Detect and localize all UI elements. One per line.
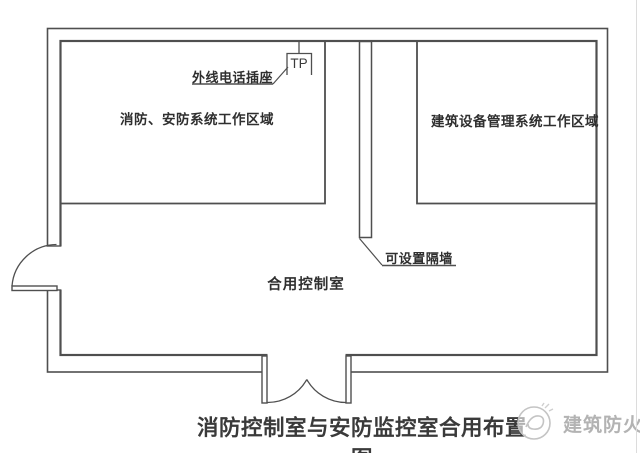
floor-plan-figure: 消防、安防系统工作区域 建筑设备管理系统工作区域 合用控制室 外线电话插座 TP…: [0, 0, 640, 453]
outer-wall-line: [48, 29, 608, 373]
partition-wall-label: 可设置隔墙: [382, 248, 456, 267]
control-room-label: 合用控制室: [256, 273, 356, 294]
floor-plan-linework: [0, 0, 640, 453]
bottom-door-left-arc: [267, 380, 307, 403]
bottom-door-left-leaf: [262, 356, 267, 403]
partition-wall: [360, 42, 372, 238]
figure-title: 消防控制室与安防监控室合用布置图: [196, 411, 528, 453]
left-door-leaf: [12, 286, 57, 291]
page-right-edge: [636, 0, 637, 453]
bottom-door-right-arc: [307, 380, 346, 403]
building-fire-logo-icon: [516, 401, 556, 443]
right-work-area-label: 建筑设备管理系统工作区域: [431, 110, 593, 130]
watermark-brand-text: 建筑防火: [563, 410, 640, 437]
telephone-socket-label: 外线电话插座: [192, 67, 273, 86]
telephone-socket-symbol-label: TP: [287, 56, 311, 71]
bottom-door-right-leaf: [346, 356, 351, 403]
left-work-area-label: 消防、安防系统工作区域: [117, 108, 277, 128]
inner-wall-line: [61, 41, 597, 355]
